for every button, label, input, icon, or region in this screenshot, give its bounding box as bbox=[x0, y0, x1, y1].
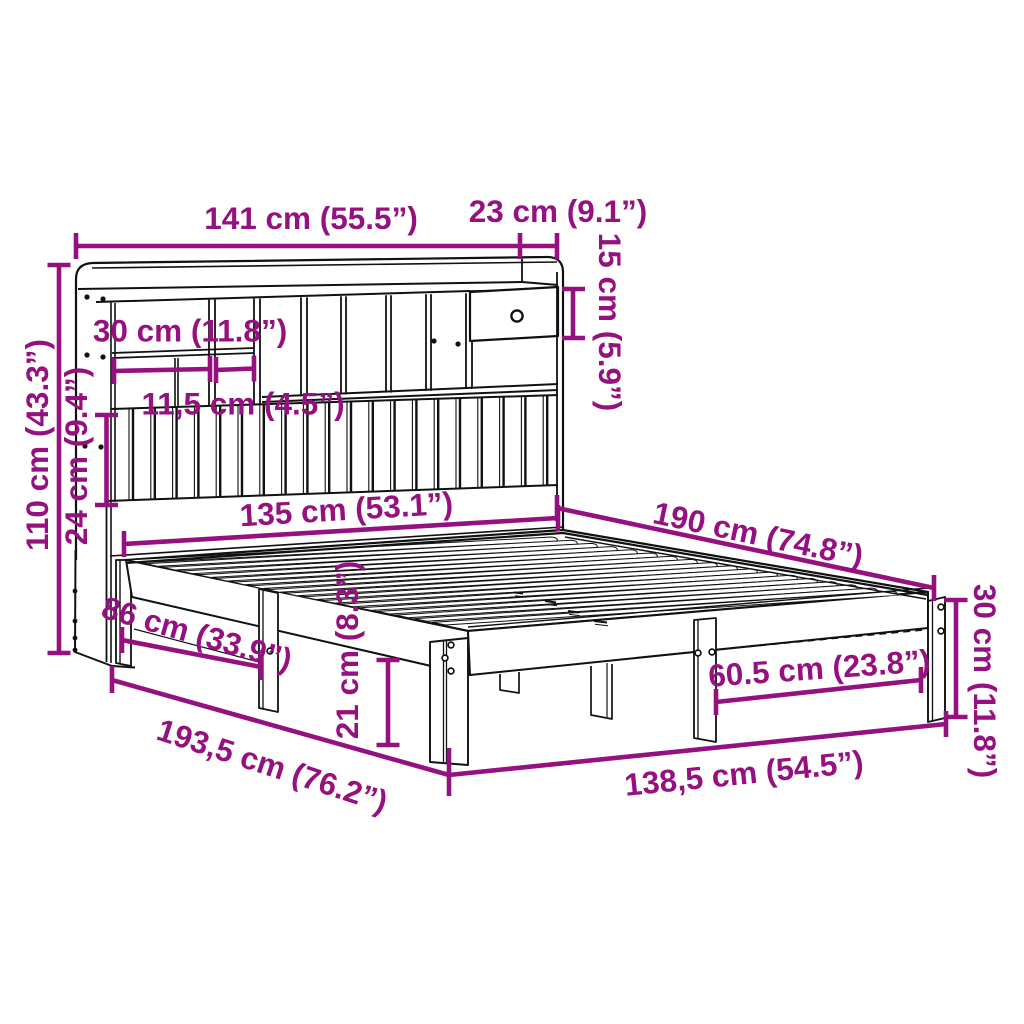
svg-text:23 cm (9.1”): 23 cm (9.1”) bbox=[469, 193, 648, 229]
svg-text:30 cm (11.8”): 30 cm (11.8”) bbox=[967, 584, 1003, 778]
svg-text:30 cm (11.8”): 30 cm (11.8”) bbox=[93, 313, 287, 349]
svg-text:24 cm (9.4”): 24 cm (9.4”) bbox=[58, 367, 94, 546]
svg-text:21 cm (8.3”): 21 cm (8.3”) bbox=[329, 561, 365, 740]
svg-text:110 cm (43.3”): 110 cm (43.3”) bbox=[19, 339, 55, 551]
svg-text:141 cm (55.5”): 141 cm (55.5”) bbox=[204, 200, 418, 236]
svg-text:11,5 cm (4.5”): 11,5 cm (4.5”) bbox=[141, 386, 344, 422]
svg-text:15 cm (5.9”): 15 cm (5.9”) bbox=[592, 233, 628, 412]
